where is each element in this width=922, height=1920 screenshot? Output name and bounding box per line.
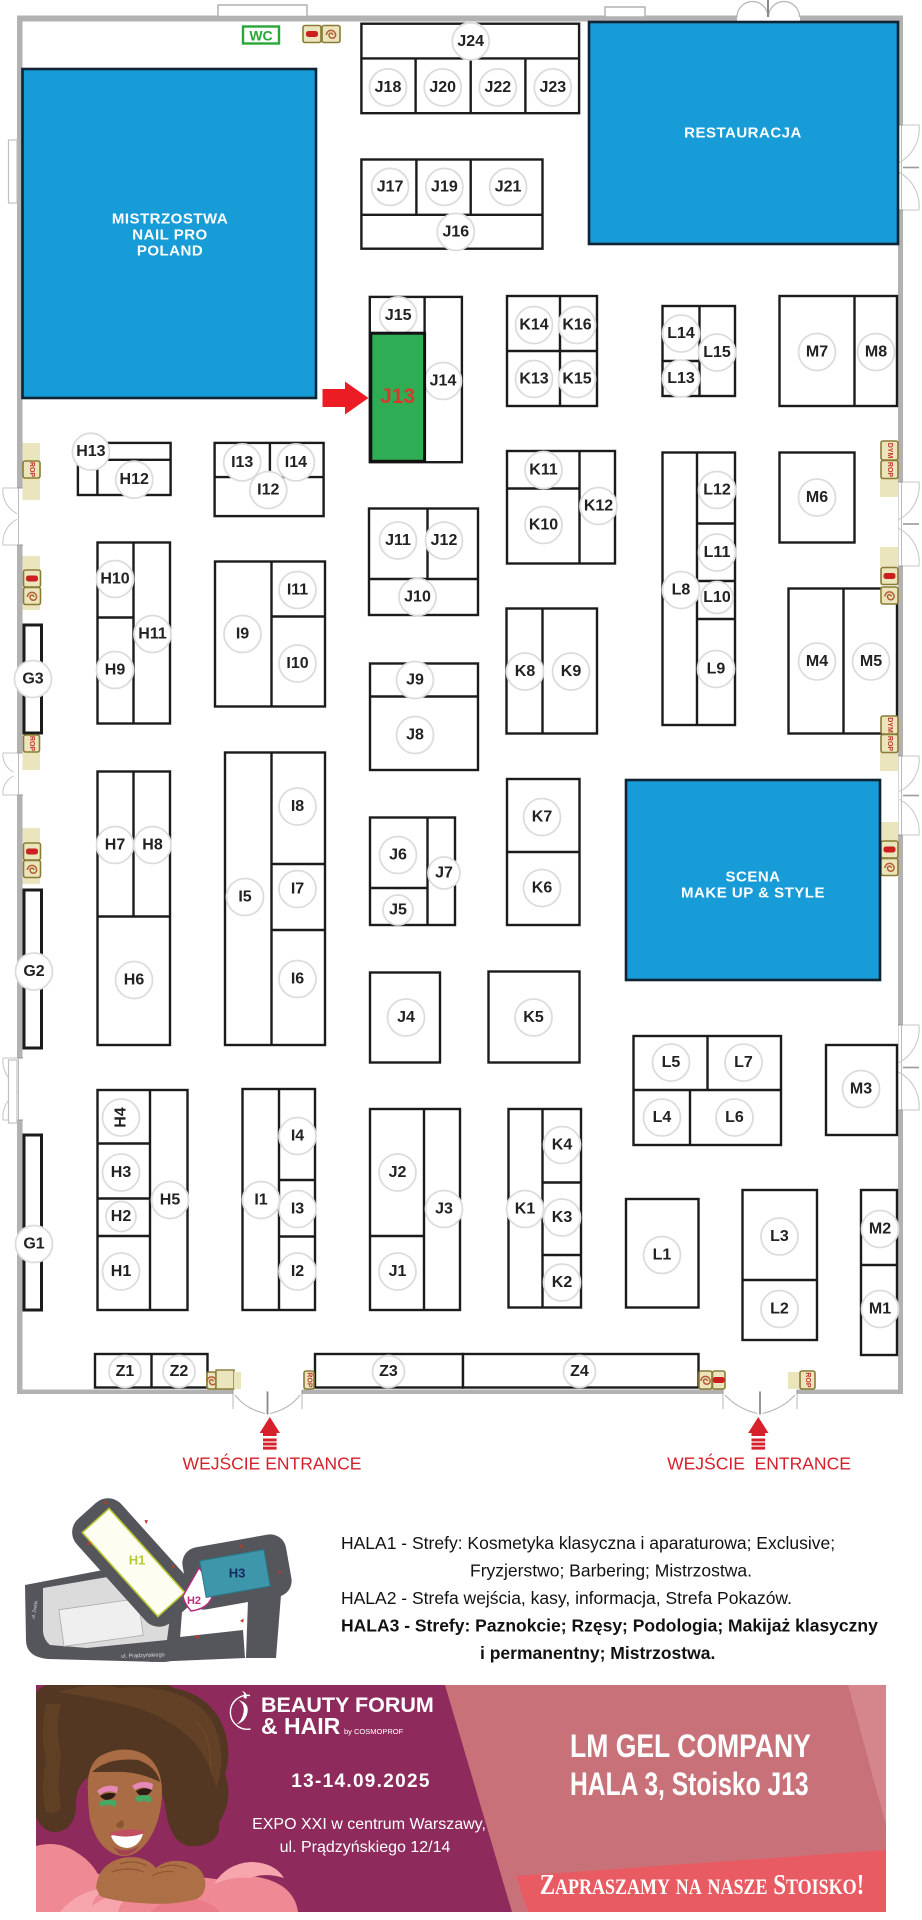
svg-text:L10: L10 [703,589,731,606]
svg-text:L7: L7 [734,1054,753,1071]
svg-text:by COSMOPROF: by COSMOPROF [344,1727,404,1736]
svg-text:J18: J18 [375,79,402,96]
svg-text:L12: L12 [703,482,731,499]
svg-text:K5: K5 [523,1009,544,1026]
svg-text:I9: I9 [236,626,249,643]
svg-text:K9: K9 [561,663,582,680]
svg-text:M2: M2 [869,1221,891,1238]
svg-text:J13: J13 [380,385,415,408]
svg-text:ROP: ROP [804,1372,811,1388]
svg-text:J9: J9 [406,672,424,689]
svg-text:ROP: ROP [306,1372,313,1388]
svg-text:K3: K3 [552,1209,573,1226]
svg-text:H11: H11 [138,626,167,643]
svg-text:G2: G2 [23,963,44,980]
svg-text:LM GEL COMPANY: LM GEL COMPANY [570,1729,811,1765]
svg-text:Z1: Z1 [116,1363,135,1380]
svg-text:M7: M7 [806,344,828,361]
svg-text:I12: I12 [257,482,279,499]
svg-text:K10: K10 [529,517,558,534]
svg-text:M3: M3 [850,1081,872,1098]
svg-text:H2: H2 [187,1595,201,1607]
svg-text:H1: H1 [129,1553,146,1568]
svg-text:J11: J11 [385,532,411,549]
svg-text:MAKE UP & STYLE: MAKE UP & STYLE [681,885,825,902]
svg-text:I5: I5 [238,889,251,906]
svg-text:L2: L2 [770,1301,789,1318]
svg-text:i permanentny; Mistrzostwa.: i permanentny; Mistrzostwa. [480,1643,715,1663]
svg-text:K2: K2 [552,1274,573,1291]
svg-text:HALA3 - Strefy: Paznokcie; Rzę: HALA3 - Strefy: Paznokcie; Rzęsy; Podolo… [341,1616,878,1636]
svg-text:G3: G3 [22,671,43,688]
svg-text:HALA 3, Stoisko J13: HALA 3, Stoisko J13 [570,1767,809,1803]
svg-text:Z4: Z4 [570,1363,589,1380]
svg-text:I8: I8 [291,798,304,815]
svg-text:K6: K6 [532,880,553,897]
svg-text:J22: J22 [484,79,511,96]
svg-text:M4: M4 [806,653,828,670]
svg-text:L8: L8 [672,582,691,599]
svg-text:WEJŚCIE ENTRANCE: WEJŚCIE ENTRANCE [667,1453,851,1474]
svg-text:HALA2 - Strefa wejścia, kasy,: HALA2 - Strefa wejścia, kasy, informacja… [341,1588,792,1608]
svg-text:H3: H3 [229,1566,246,1581]
svg-text:M5: M5 [860,653,882,670]
svg-text:H7: H7 [105,837,126,854]
svg-text:WEJŚCIE ENTRANCE: WEJŚCIE ENTRANCE [183,1453,362,1474]
svg-text:J1: J1 [389,1263,407,1280]
svg-text:J16: J16 [442,223,469,240]
svg-text:M8: M8 [865,344,887,361]
svg-text:WC: WC [249,28,272,44]
svg-text:POLAND: POLAND [137,243,203,260]
svg-text:H12: H12 [120,471,149,488]
svg-text:H2: H2 [111,1208,132,1225]
svg-text:Fryzjerstwo; Barbering; Mistrz: Fryzjerstwo; Barbering; Mistrzostwa. [470,1561,752,1581]
svg-text:I13: I13 [231,454,253,471]
svg-text:ROP: ROP [886,736,893,752]
svg-text:ROP: ROP [28,462,35,478]
svg-text:J2: J2 [389,1164,407,1181]
svg-text:NAIL PRO: NAIL PRO [132,227,207,244]
svg-text:L3: L3 [770,1228,789,1245]
svg-text:SCENA: SCENA [725,869,780,886]
svg-text:H3: H3 [111,1164,132,1181]
svg-text:L4: L4 [653,1109,672,1126]
svg-text:RESTAURACJA: RESTAURACJA [684,125,802,142]
svg-text:H13: H13 [76,443,105,460]
svg-text:J3: J3 [435,1201,453,1218]
svg-text:J12: J12 [431,532,458,549]
svg-text:HALA1 - Strefy: Kosmetyka klas: HALA1 - Strefy: Kosmetyka klasyczna i ap… [341,1533,835,1553]
svg-text:J21: J21 [495,178,522,195]
svg-text:Z3: Z3 [379,1363,398,1380]
svg-text:J5: J5 [389,902,407,919]
svg-text:J20: J20 [429,79,456,96]
svg-text:Z2: Z2 [170,1363,189,1380]
svg-text:J15: J15 [385,307,412,324]
svg-text:H10: H10 [100,571,129,588]
svg-text:H1: H1 [111,1263,132,1280]
svg-text:J17: J17 [377,178,404,195]
svg-text:DYM: DYM [886,443,893,459]
svg-text:I2: I2 [291,1263,304,1280]
svg-text:K13: K13 [519,371,548,388]
svg-text:I6: I6 [291,971,304,988]
svg-text:K16: K16 [562,317,591,334]
svg-text:L9: L9 [707,661,726,678]
svg-text:J6: J6 [389,847,407,864]
svg-text:ul. Prądzyńskiego 12/14: ul. Prądzyńskiego 12/14 [280,1839,451,1856]
svg-text:K4: K4 [552,1137,573,1154]
svg-text:K1: K1 [515,1201,536,1218]
svg-text:& HAIR: & HAIR [261,1713,341,1739]
svg-text:H9: H9 [105,662,126,679]
svg-text:L13: L13 [667,370,695,387]
svg-text:L11: L11 [704,544,731,561]
svg-text:I7: I7 [291,881,304,898]
svg-text:L15: L15 [703,344,731,361]
svg-text:K11: K11 [529,462,558,479]
svg-text:I11: I11 [287,582,308,599]
svg-text:EXPO XXI w centrum Warszawy,: EXPO XXI w centrum Warszawy, [252,1816,486,1833]
svg-text:J14: J14 [430,373,457,390]
svg-text:I14: I14 [285,454,307,471]
svg-text:DYM: DYM [886,717,893,733]
svg-text:MISTRZOSTWA: MISTRZOSTWA [112,211,228,228]
svg-text:H5: H5 [160,1192,181,1209]
svg-text:J7: J7 [435,865,453,882]
svg-text:I10: I10 [286,655,308,672]
svg-text:K14: K14 [519,317,548,334]
svg-text:J24: J24 [457,33,484,50]
svg-text:13-14.09.2025: 13-14.09.2025 [291,1771,430,1792]
svg-text:L5: L5 [662,1054,681,1071]
svg-text:H4: H4 [113,1107,130,1128]
svg-text:I4: I4 [291,1128,304,1145]
svg-text:H6: H6 [124,972,145,989]
svg-text:ROP: ROP [28,736,35,752]
svg-text:M6: M6 [806,489,828,506]
svg-text:J19: J19 [431,178,458,195]
svg-text:J23: J23 [539,79,566,96]
svg-text:M1: M1 [869,1301,891,1318]
svg-text:K12: K12 [584,498,613,515]
svg-text:I3: I3 [291,1201,304,1218]
svg-text:J4: J4 [397,1009,415,1026]
svg-text:J8: J8 [406,727,424,744]
svg-text:K15: K15 [562,371,591,388]
svg-text:K8: K8 [515,663,536,680]
svg-text:H8: H8 [142,837,163,854]
svg-text:L1: L1 [653,1247,672,1264]
svg-text:K7: K7 [532,809,553,826]
svg-text:L14: L14 [667,325,695,342]
svg-text:J10: J10 [404,589,431,606]
svg-text:G1: G1 [23,1236,44,1253]
svg-text:I1: I1 [254,1192,267,1209]
svg-text:L6: L6 [725,1109,744,1126]
svg-text:ROP: ROP [886,462,893,478]
